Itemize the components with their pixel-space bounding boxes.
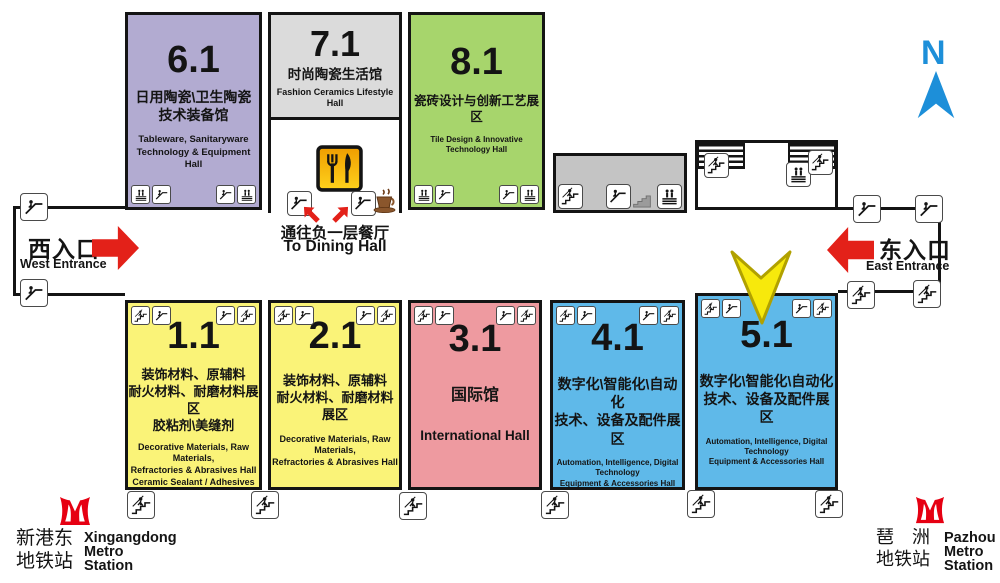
elevator-icon bbox=[414, 185, 433, 204]
hall-name-en: Automation, Intelligence, Digital Techno… bbox=[698, 437, 835, 468]
escalator-icon bbox=[152, 185, 171, 204]
metro-logo-icon bbox=[58, 495, 92, 527]
escalator-icon bbox=[435, 185, 454, 204]
escalator-icon bbox=[915, 195, 943, 223]
east-station-label-zh: 琶 洲 地铁站 bbox=[876, 527, 930, 571]
stairs-icon bbox=[414, 306, 433, 325]
escalator-icon bbox=[639, 306, 658, 325]
service-area bbox=[553, 153, 687, 213]
north-arrow-icon bbox=[915, 70, 957, 120]
hall-number: 8.1 bbox=[450, 43, 503, 81]
highlight-arrow-icon bbox=[728, 247, 794, 327]
hall-name-en: Tableware, Sanitaryware Technology & Equ… bbox=[128, 134, 259, 171]
metro-logo-icon bbox=[914, 495, 946, 525]
stairs-icon bbox=[127, 491, 155, 519]
escalator-icon bbox=[216, 185, 235, 204]
hall-name-en: Decorative Materials, Raw Materials, Ref… bbox=[271, 434, 399, 469]
elevator-icon bbox=[237, 185, 256, 204]
elevator-icon bbox=[131, 185, 150, 204]
hall-3-1: 3.1 国际馆 International Hall bbox=[408, 300, 542, 490]
west-entrance-label-en: West Entrance bbox=[20, 257, 107, 271]
hall-name-en: Fashion Ceramics Lifestyle Hall bbox=[271, 87, 399, 110]
escalator-icon bbox=[20, 193, 48, 221]
hall-8-1: 8.1 瓷砖设计与创新工艺展区 Tile Design & Innovative… bbox=[408, 12, 545, 210]
stairs-icon bbox=[847, 281, 875, 309]
stairs-icon bbox=[377, 306, 396, 325]
west-station-label-zh: 新港东 地铁站 bbox=[16, 527, 73, 573]
east-entrance-label-en: East Entrance bbox=[866, 259, 949, 273]
hall-4-1: 4.1 数字化\智能化\自动化 技术、设备及配件展区 Automation, I… bbox=[550, 300, 685, 490]
escalator-icon bbox=[20, 279, 48, 307]
hall-1-1: 1.1 装饰材料、原辅料 耐火材料、耐磨材料展区 胶粘剂\美缝剂 Decorat… bbox=[125, 300, 262, 490]
escalator-icon bbox=[435, 306, 454, 325]
hall-number: 6.1 bbox=[167, 41, 220, 79]
escalator-icon bbox=[216, 306, 235, 325]
hall-number: 7.1 bbox=[310, 26, 360, 62]
west-corridor-wall bbox=[13, 206, 16, 295]
food-court-icon bbox=[316, 145, 363, 192]
stairs-icon bbox=[251, 491, 279, 519]
hall-name-en: International Hall bbox=[420, 427, 530, 445]
hall-number: 3.1 bbox=[449, 320, 502, 358]
hall-name-zh: 国际馆 bbox=[451, 386, 499, 407]
coffee-icon bbox=[373, 188, 401, 214]
hall-6-1: 6.1 日用陶瓷\卫生陶瓷 技术装备馆 Tableware, Sanitaryw… bbox=[125, 12, 262, 210]
elevator-icon bbox=[657, 184, 682, 209]
hall-number: 1.1 bbox=[167, 317, 220, 355]
north-label: N bbox=[921, 34, 946, 73]
stairs-icon bbox=[815, 490, 843, 518]
stairs-icon bbox=[660, 306, 679, 325]
hall-name-zh: 装饰材料、原辅料 耐火材料、耐磨材料展区 胶粘剂\美缝剂 bbox=[128, 367, 259, 435]
hall-number: 4.1 bbox=[591, 319, 644, 357]
escalator-icon bbox=[499, 185, 518, 204]
hall-number: 2.1 bbox=[309, 317, 362, 355]
stairs-icon bbox=[813, 299, 832, 318]
stairs-icon bbox=[913, 280, 941, 308]
hall-name-zh: 数字化\智能化\自动化 技术、设备及配件展区 bbox=[553, 375, 682, 448]
stairs-icon bbox=[541, 491, 569, 519]
escalator-icon bbox=[356, 306, 375, 325]
stairs-icon bbox=[131, 306, 150, 325]
escalator-icon bbox=[853, 195, 881, 223]
stairs-icon bbox=[399, 492, 427, 520]
hall-name-en: Decorative Materials, Raw Materials, Ref… bbox=[128, 442, 259, 489]
hall-name-zh: 数字化\智能化\自动化 技术、设备及配件展区 bbox=[698, 372, 835, 427]
hall-name-en: Automation, Intelligence, Digital Techno… bbox=[553, 458, 682, 489]
stairs-icon bbox=[556, 306, 575, 325]
escalator-icon bbox=[577, 306, 596, 325]
escalator-icon bbox=[496, 306, 515, 325]
stairs-icon bbox=[517, 306, 536, 325]
escalator-icon bbox=[152, 306, 171, 325]
escalator-icon bbox=[606, 184, 631, 209]
hall-name-en: Tile Design & Innovative Technology Hall bbox=[411, 135, 542, 156]
hall-name-zh: 装饰材料、原辅料 耐火材料、耐磨材料展区 bbox=[271, 373, 399, 424]
dining-label-en: To Dining Hall bbox=[268, 238, 402, 256]
hall-name-zh: 日用陶瓷\卫生陶瓷 技术装备馆 bbox=[136, 88, 252, 124]
stairwell-structure bbox=[695, 140, 838, 210]
hall-2-1: 2.1 装饰材料、原辅料 耐火材料、耐磨材料展区 Decorative Mate… bbox=[268, 300, 402, 490]
hall-name-zh: 时尚陶瓷生活馆 bbox=[288, 66, 383, 84]
stairs-icon bbox=[558, 184, 583, 209]
exhibition-floor-plan: 6.1 日用陶瓷\卫生陶瓷 技术装备馆 Tableware, Sanitaryw… bbox=[0, 0, 1000, 583]
west-station-label-en: Xingangdong Metro Station bbox=[84, 531, 177, 574]
escalator-icon bbox=[295, 306, 314, 325]
escalator-icon bbox=[792, 299, 811, 318]
stairs-icon bbox=[808, 150, 833, 175]
hall-7-1: 7.1 时尚陶瓷生活馆 Fashion Ceramics Lifestyle H… bbox=[268, 12, 402, 120]
hall-name-zh: 瓷砖设计与创新工艺展区 bbox=[411, 93, 542, 126]
stairs-icon bbox=[701, 299, 720, 318]
east-station-label-en: Pazhou Metro Station bbox=[944, 531, 996, 574]
elevator-icon bbox=[520, 185, 539, 204]
steps-icon bbox=[632, 195, 652, 208]
stairs-icon bbox=[237, 306, 256, 325]
stairs-icon bbox=[274, 306, 293, 325]
stairs-icon bbox=[704, 153, 729, 178]
stairs-icon bbox=[687, 490, 715, 518]
